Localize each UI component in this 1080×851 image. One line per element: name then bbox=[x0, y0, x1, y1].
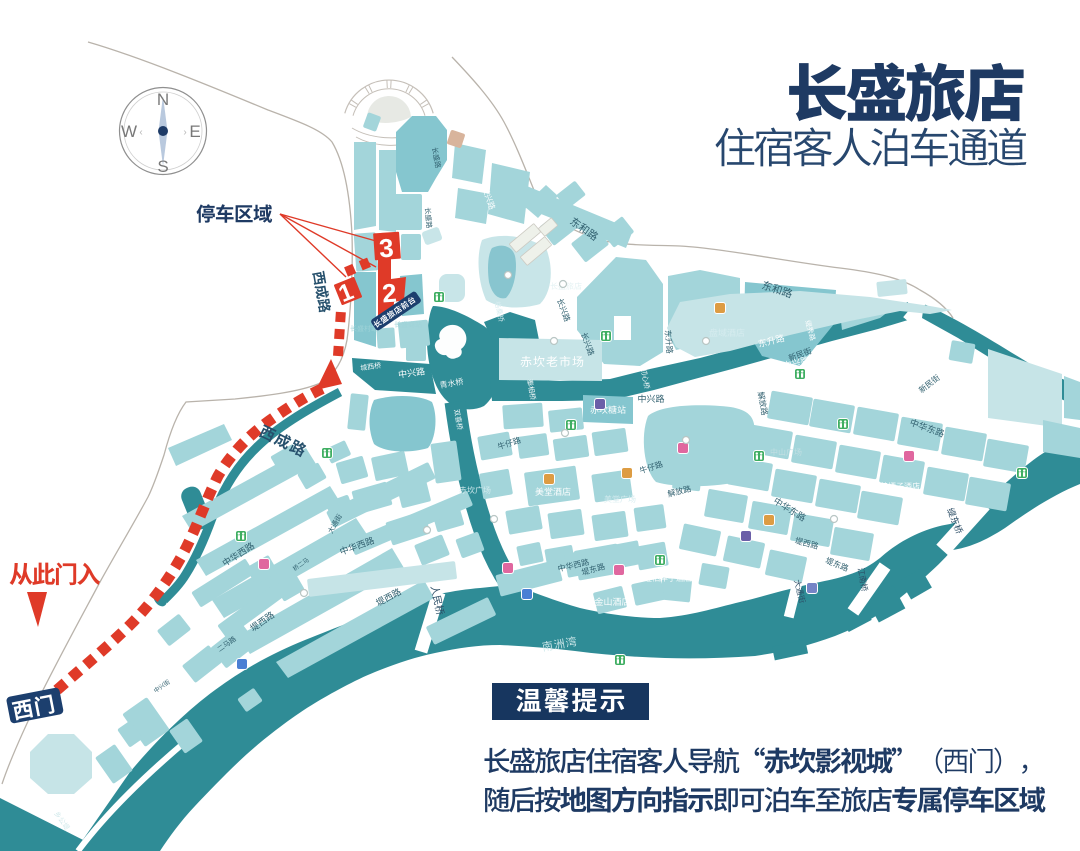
svg-text:S: S bbox=[157, 157, 168, 176]
svg-text:N: N bbox=[157, 90, 169, 109]
svg-text:W: W bbox=[121, 122, 137, 141]
svg-text:›: › bbox=[183, 127, 186, 138]
svg-text:E: E bbox=[189, 122, 200, 141]
svg-text:‹: ‹ bbox=[139, 127, 142, 138]
